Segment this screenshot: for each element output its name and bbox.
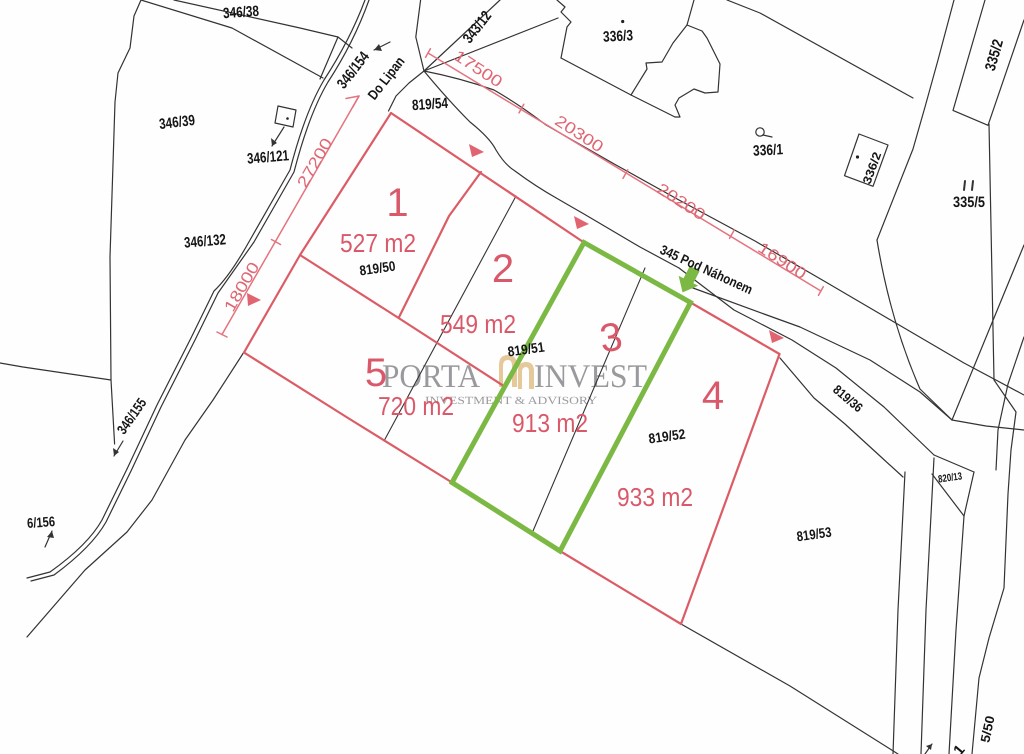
svg-text:2: 2 xyxy=(492,247,514,291)
svg-text:335/5: 335/5 xyxy=(953,194,985,211)
svg-text:346/38: 346/38 xyxy=(223,3,260,22)
svg-text:913 m2: 913 m2 xyxy=(512,408,588,438)
svg-text:PORTA: PORTA xyxy=(382,359,480,395)
svg-text:720 m2: 720 m2 xyxy=(378,391,454,421)
svg-text:6/156: 6/156 xyxy=(26,513,55,531)
svg-text:336/1: 336/1 xyxy=(753,141,784,160)
svg-text:527 m2: 527 m2 xyxy=(340,228,416,258)
svg-text:336/3: 336/3 xyxy=(603,27,634,46)
svg-text:933 m2: 933 m2 xyxy=(617,482,693,512)
svg-text:549 m2: 549 m2 xyxy=(440,309,516,339)
svg-text:819/54: 819/54 xyxy=(411,95,449,115)
svg-text:INVEST: INVEST xyxy=(534,359,647,395)
svg-text:1: 1 xyxy=(386,181,408,225)
svg-text:5: 5 xyxy=(365,351,387,395)
svg-text:4: 4 xyxy=(702,374,724,418)
